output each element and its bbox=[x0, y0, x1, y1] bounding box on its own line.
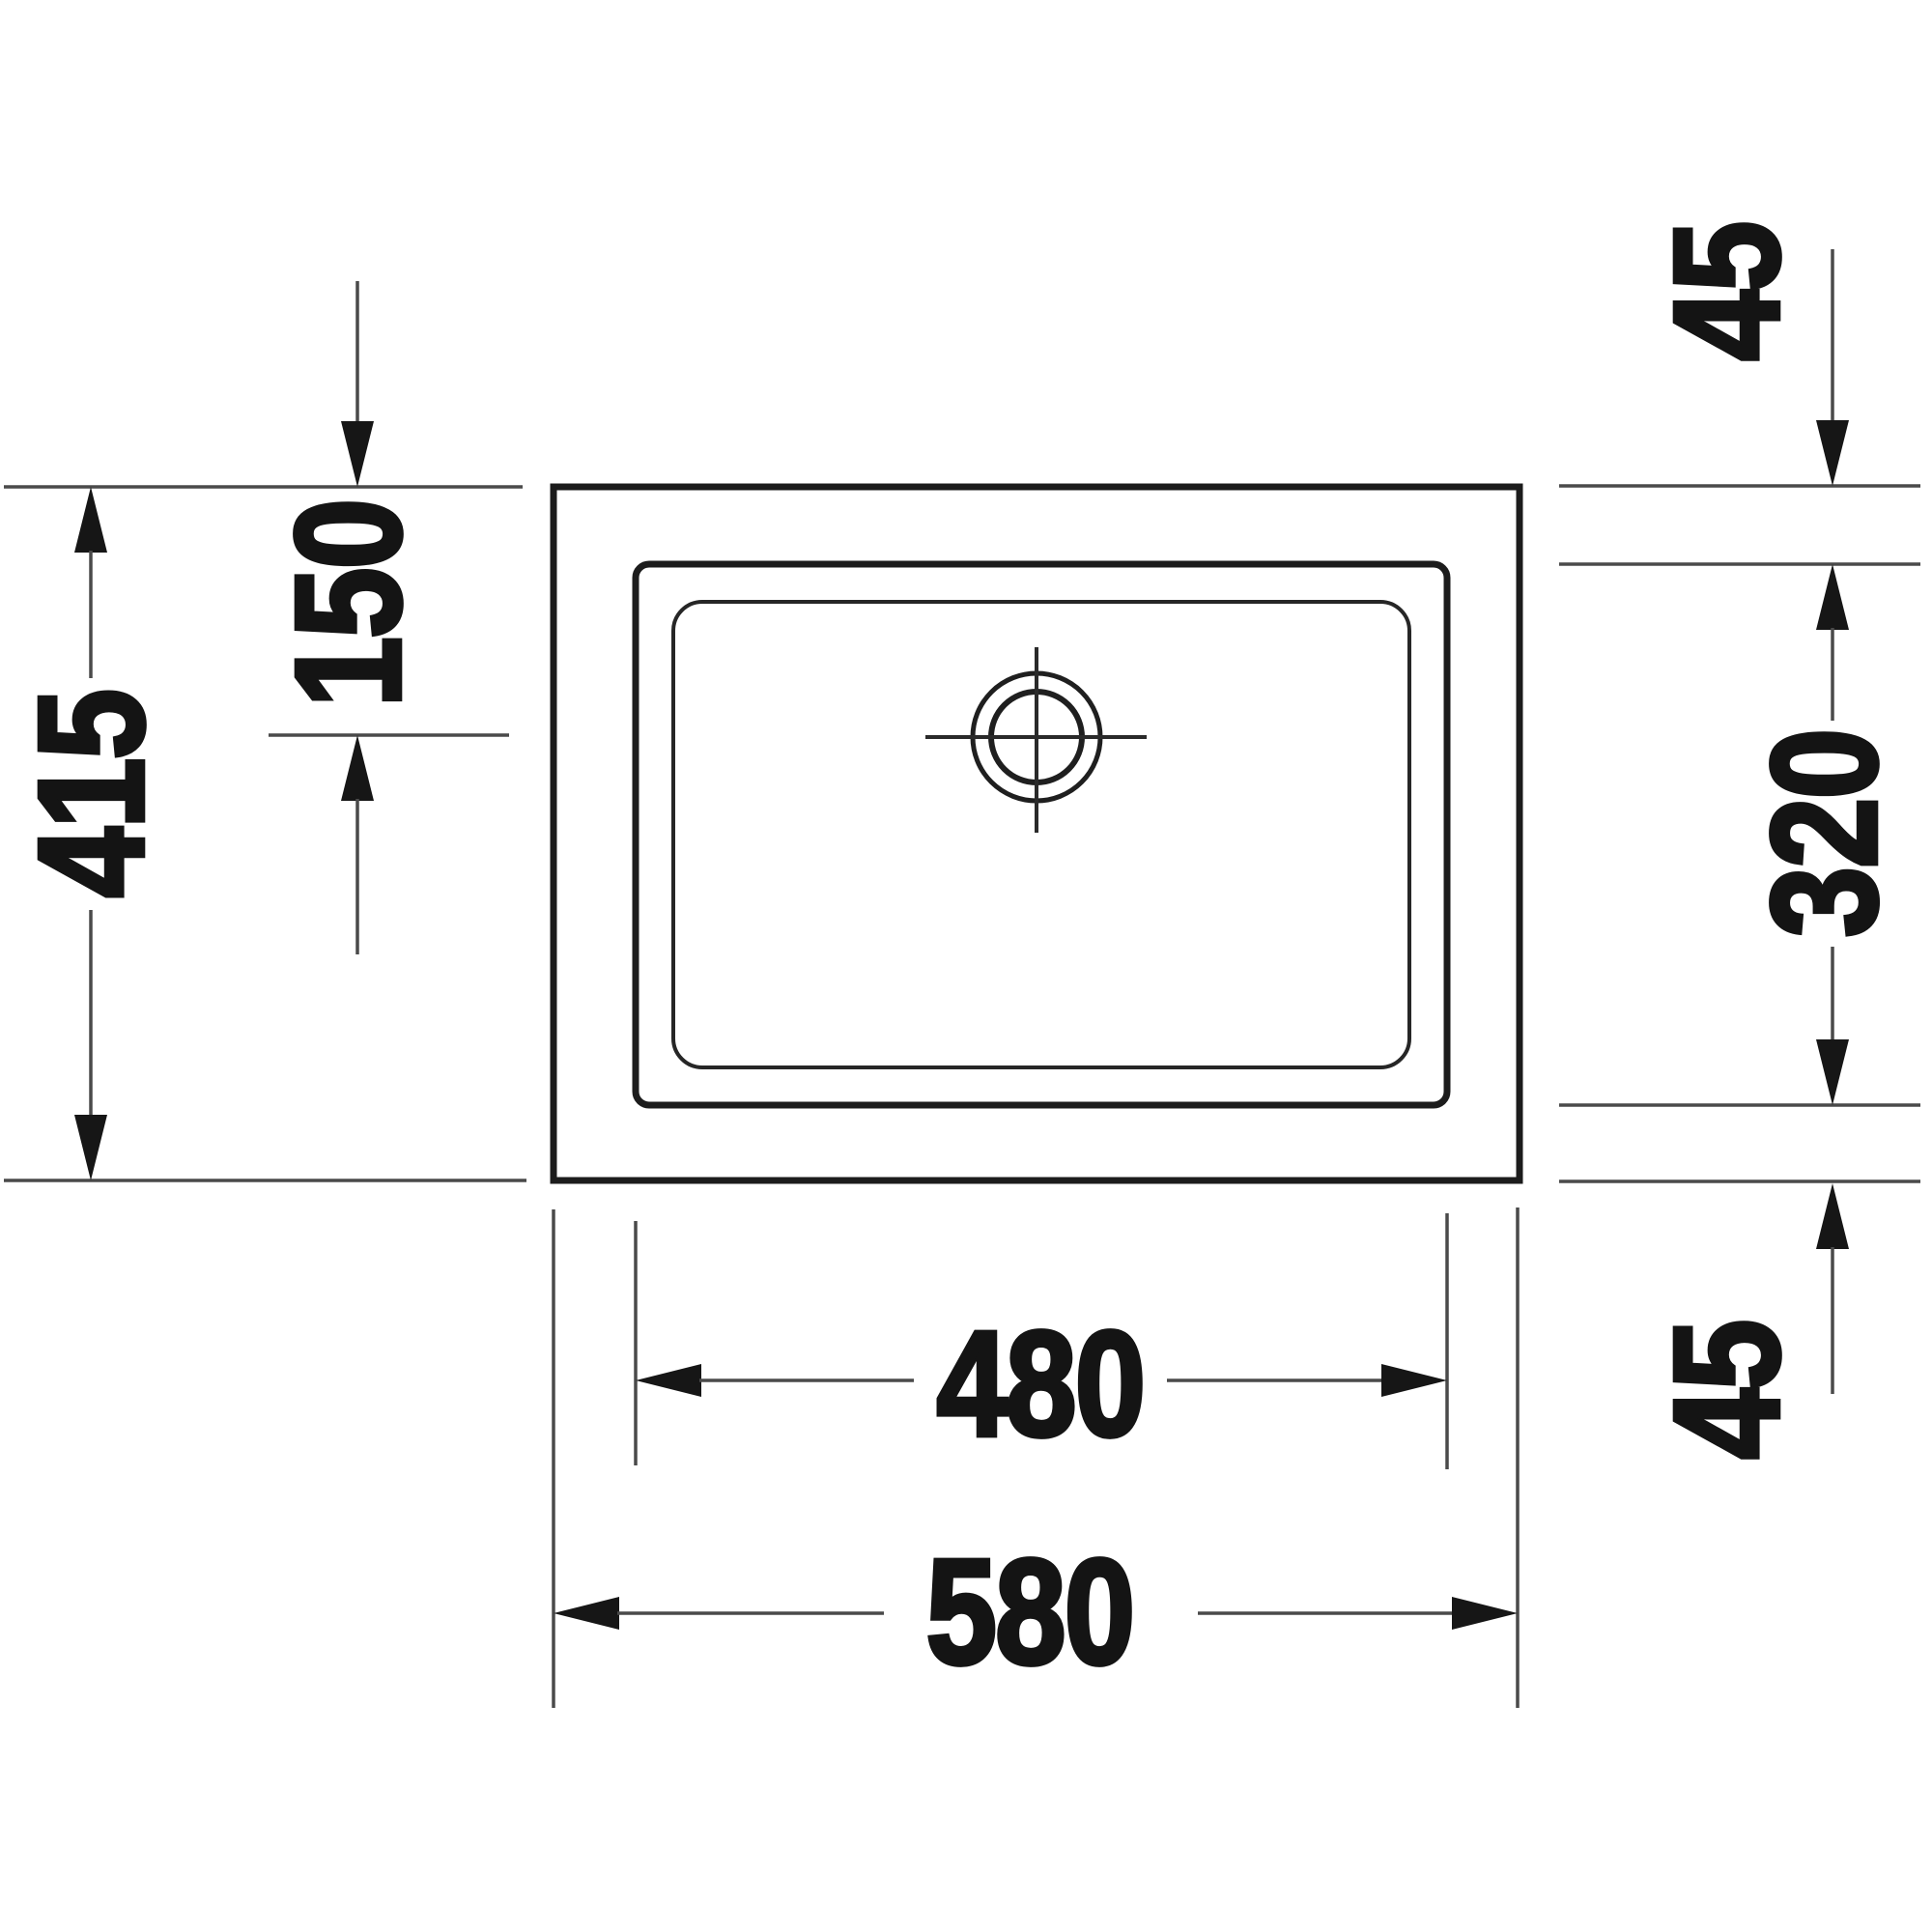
basin-dimension-drawing: 415 150 45 320 45 480 bbox=[0, 0, 1932, 1932]
outer-rim-outline bbox=[554, 487, 1520, 1180]
dimension-drain-offset: 150 bbox=[266, 281, 432, 954]
dim-label-150: 150 bbox=[266, 500, 432, 708]
dimension-bottom-margin: 45 bbox=[1644, 1183, 1849, 1460]
arrowhead-down-150 bbox=[341, 421, 374, 487]
dim-label-45-bottom: 45 bbox=[1644, 1321, 1810, 1459]
dimension-basin-inner-height: 320 bbox=[1742, 564, 1908, 1105]
arrowhead-up-415 bbox=[74, 487, 107, 553]
basin-rim-outline bbox=[636, 564, 1447, 1105]
dim-label-415: 415 bbox=[9, 691, 175, 898]
dim-label-480: 480 bbox=[937, 1301, 1145, 1467]
arrowhead-down-45-top bbox=[1816, 420, 1849, 486]
dimension-overall-width: 580 bbox=[554, 1529, 1518, 1695]
drain-symbol bbox=[925, 647, 1147, 833]
arrowhead-left-480 bbox=[636, 1364, 701, 1397]
arrowhead-left-580 bbox=[554, 1597, 619, 1630]
technical-drawing-canvas: 415 150 45 320 45 480 bbox=[0, 0, 1932, 1932]
arrowhead-up-150 bbox=[341, 735, 374, 801]
dim-label-580: 580 bbox=[926, 1529, 1134, 1695]
arrowhead-right-580 bbox=[1452, 1597, 1518, 1630]
arrowhead-down-320 bbox=[1816, 1039, 1849, 1105]
dimension-basin-inner-width: 480 bbox=[636, 1301, 1447, 1467]
dim-label-45-top: 45 bbox=[1644, 222, 1810, 360]
dimension-overall-height: 415 bbox=[9, 487, 175, 1180]
dim-label-320: 320 bbox=[1742, 730, 1908, 938]
arrowhead-right-480 bbox=[1381, 1364, 1447, 1397]
arrowhead-up-320 bbox=[1816, 564, 1849, 630]
dimension-top-margin: 45 bbox=[1644, 222, 1849, 486]
arrowhead-down-415 bbox=[74, 1115, 107, 1180]
basin-outlines bbox=[554, 487, 1520, 1180]
arrowhead-up-45-bottom bbox=[1816, 1183, 1849, 1249]
